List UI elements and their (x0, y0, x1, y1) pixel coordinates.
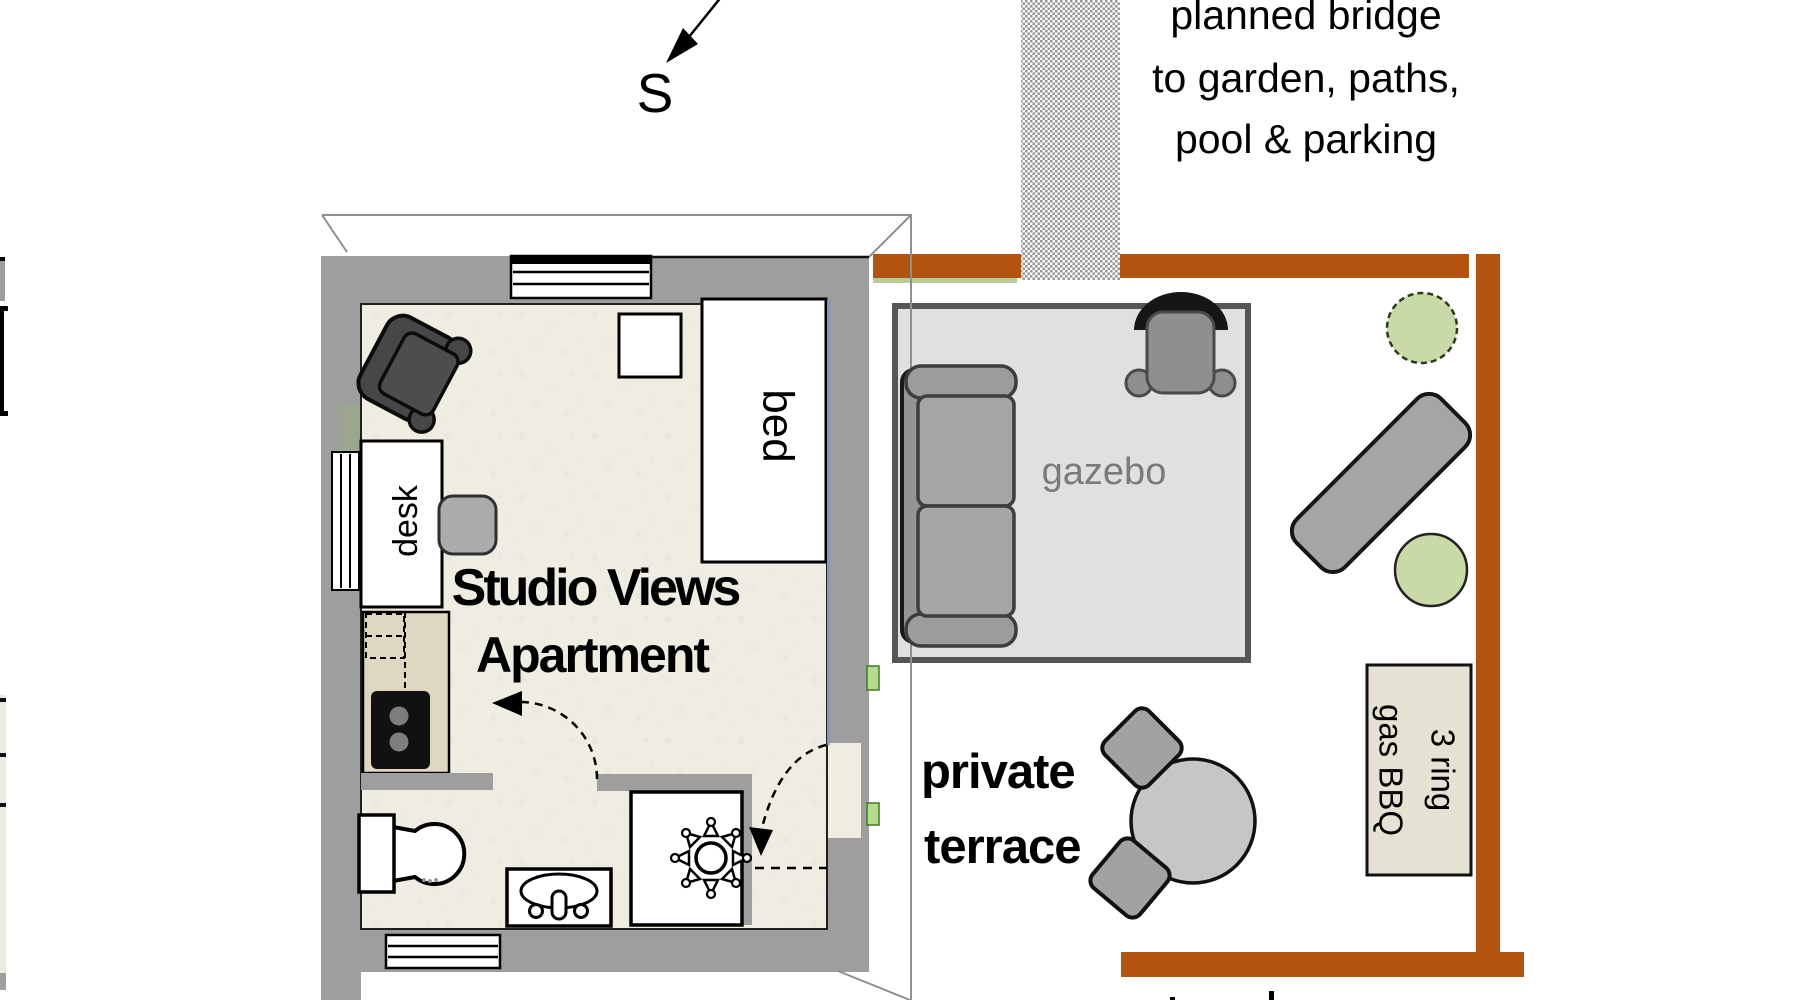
svg-text:gas BBQ: gas BBQ (1372, 704, 1409, 836)
svg-text:to garden, paths,: to garden, paths, (1152, 55, 1460, 101)
svg-text:planned bridge: planned bridge (1170, 0, 1441, 38)
svg-text:S: S (637, 62, 674, 124)
svg-text:Apartment: Apartment (476, 627, 710, 683)
svg-text:3 ring: 3 ring (1424, 729, 1461, 812)
svg-text:private: private (921, 745, 1075, 799)
svg-text:Studio Views: Studio Views (452, 559, 740, 617)
svg-text:pool & parking: pool & parking (1175, 116, 1437, 162)
svg-text:terrace: terrace (924, 820, 1080, 874)
svg-text:bed: bed (753, 389, 802, 462)
svg-text:desk: desk (387, 484, 425, 557)
svg-text:gazebo: gazebo (1042, 451, 1167, 493)
